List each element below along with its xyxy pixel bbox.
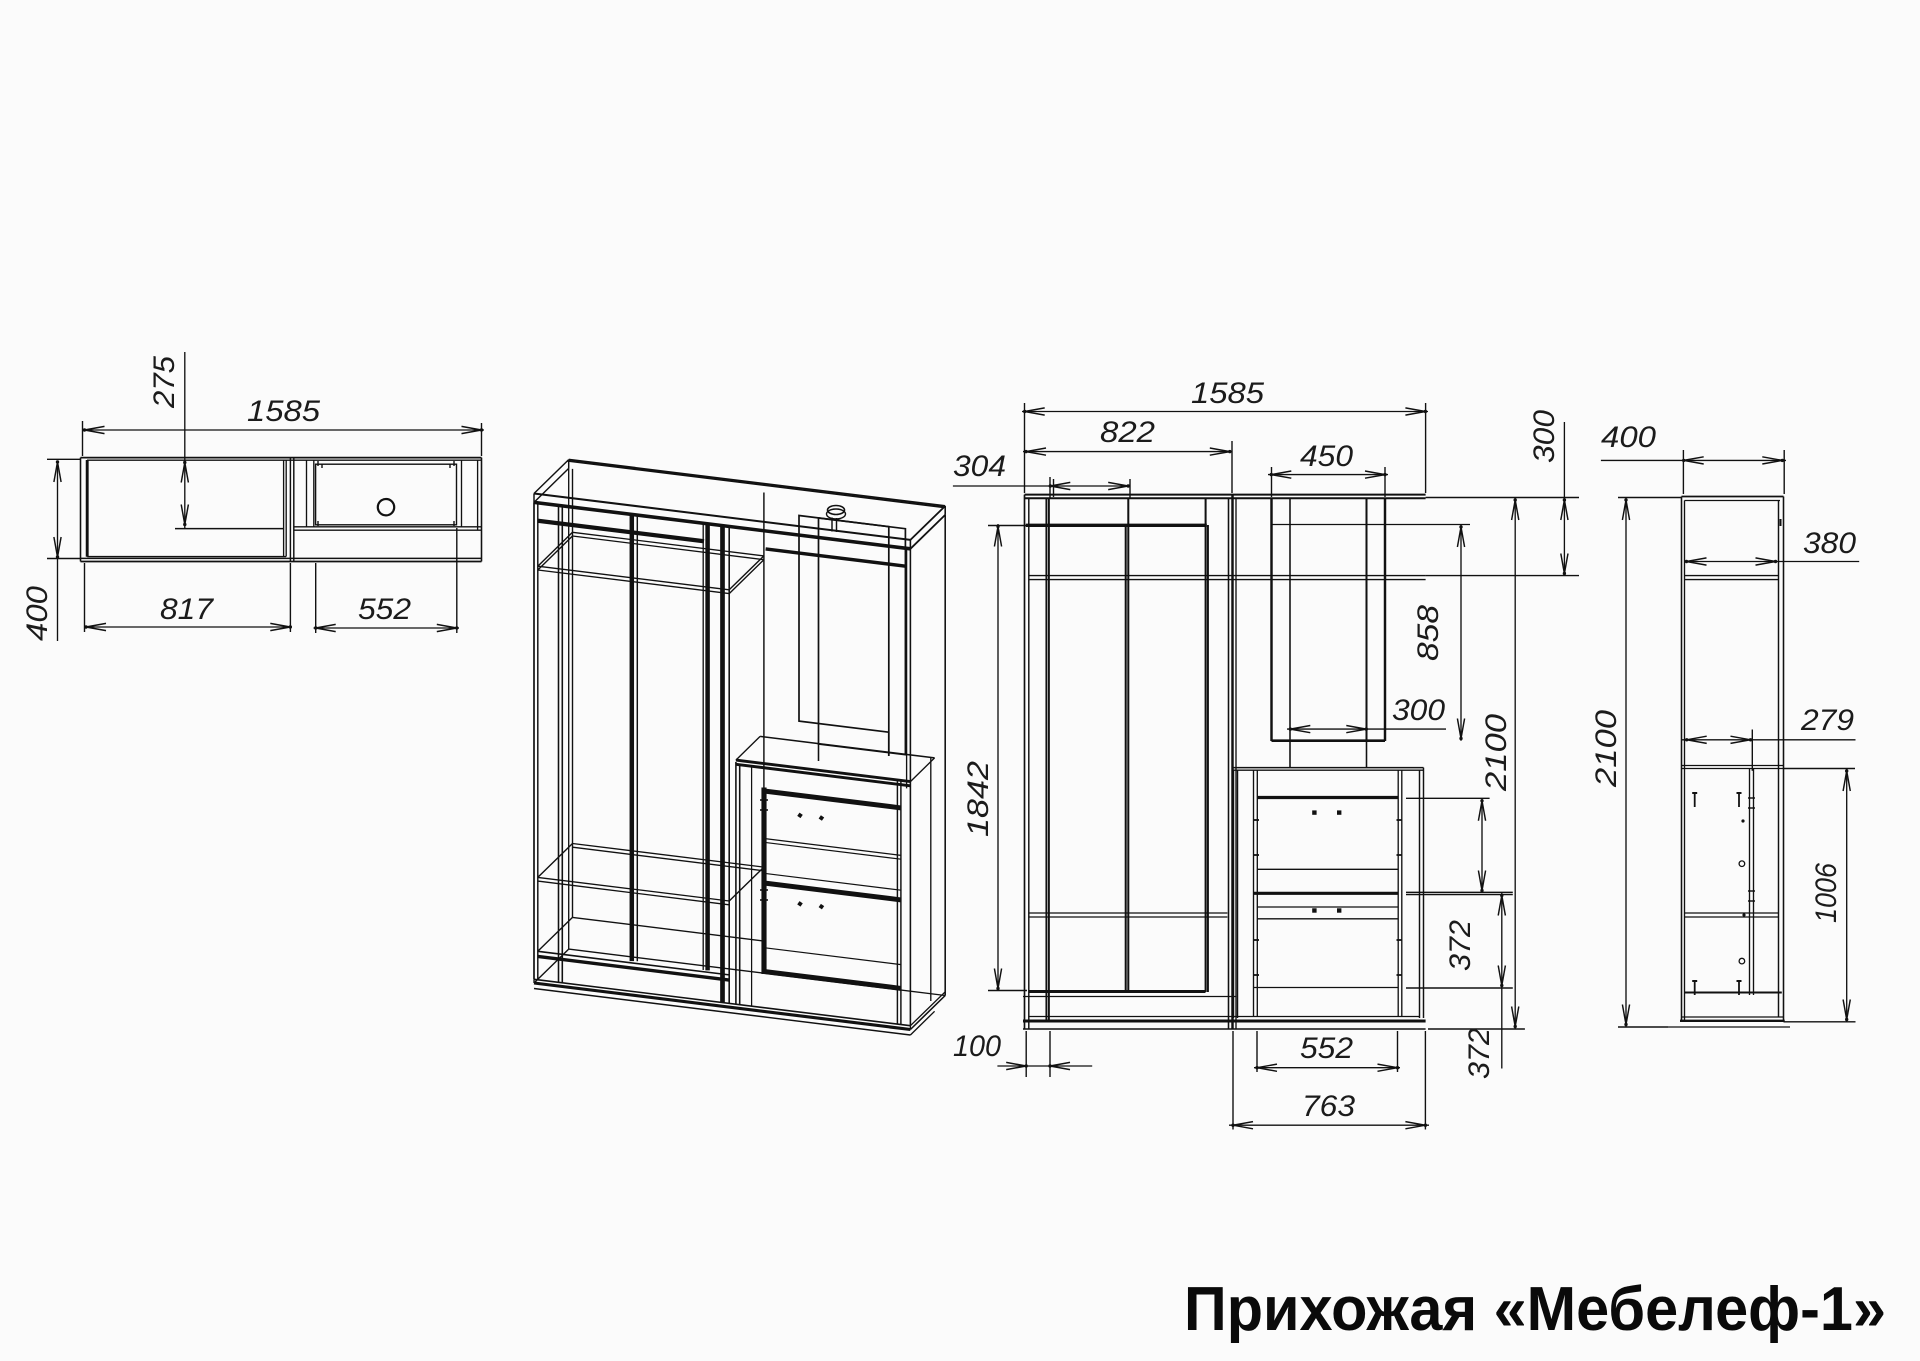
svg-text:450: 450 (1300, 440, 1353, 473)
svg-text:275: 275 (148, 356, 181, 409)
svg-text:858: 858 (1412, 605, 1445, 661)
svg-text:822: 822 (1100, 416, 1155, 449)
svg-text:1585: 1585 (247, 395, 320, 428)
svg-text:552: 552 (1300, 1032, 1353, 1065)
svg-text:300: 300 (1528, 410, 1561, 463)
svg-text:763: 763 (1302, 1090, 1355, 1123)
svg-text:279: 279 (1800, 704, 1854, 737)
svg-text:400: 400 (21, 586, 54, 641)
svg-text:100: 100 (953, 1030, 1001, 1063)
svg-text:2100: 2100 (1590, 710, 1623, 789)
svg-text:1842: 1842 (962, 761, 995, 837)
svg-text:380: 380 (1803, 527, 1856, 560)
svg-text:2100: 2100 (1480, 714, 1513, 793)
svg-text:552: 552 (358, 593, 411, 626)
svg-text:1585: 1585 (1191, 377, 1264, 410)
svg-text:372: 372 (1444, 920, 1477, 971)
svg-text:372: 372 (1463, 1028, 1496, 1079)
svg-text:300: 300 (1392, 694, 1445, 727)
svg-text:1006: 1006 (1810, 863, 1843, 923)
svg-text:817: 817 (160, 593, 214, 626)
svg-text:Прихожая «Мебелеф-1»: Прихожая «Мебелеф-1» (1184, 1275, 1886, 1344)
svg-text:304: 304 (953, 450, 1006, 483)
svg-text:400: 400 (1601, 421, 1656, 454)
